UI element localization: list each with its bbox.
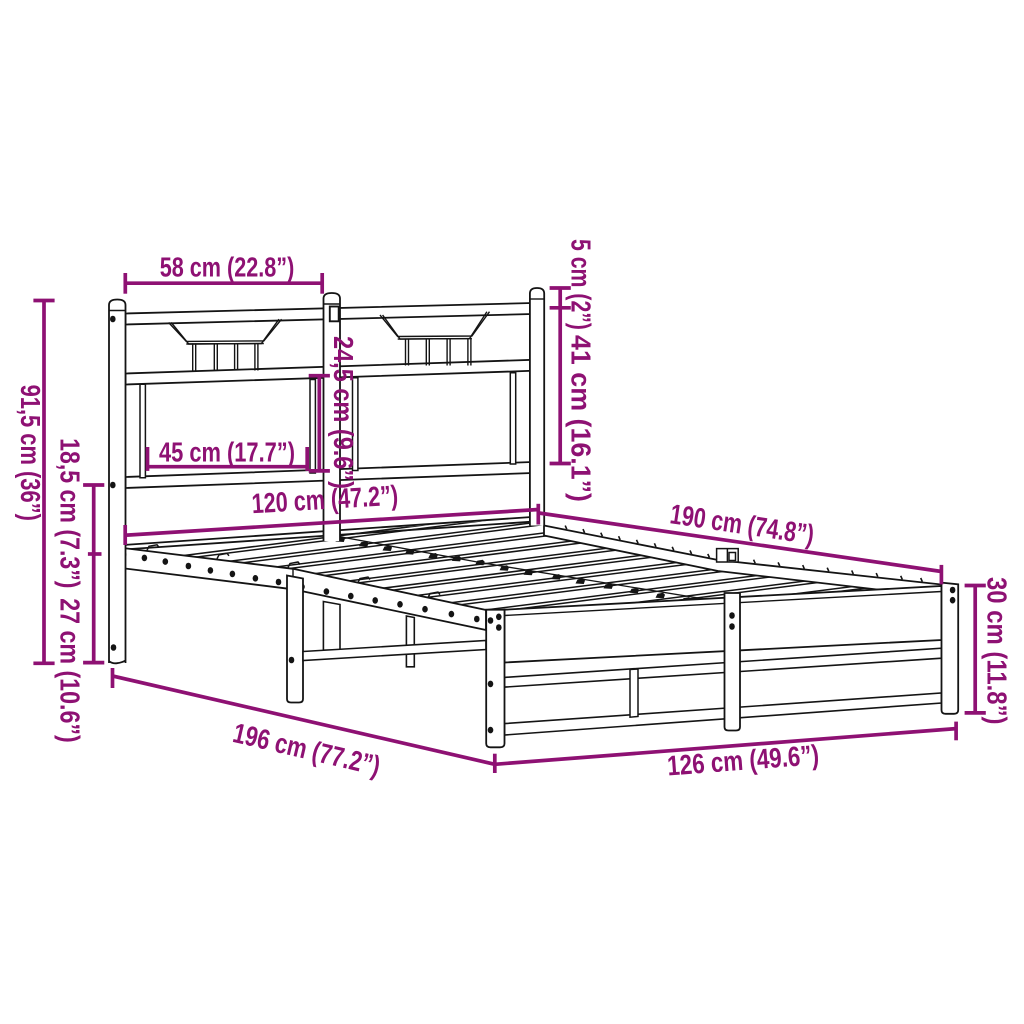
svg-text:45 cm (17.7”): 45 cm (17.7”): [159, 437, 295, 468]
svg-text:91,5 cm (36”): 91,5 cm (36”): [15, 385, 46, 521]
svg-text:27 cm (10.6”): 27 cm (10.6”): [55, 598, 86, 743]
svg-text:5 cm (2”): 5 cm (2”): [566, 239, 597, 330]
svg-text:24,5 cm (9.6”): 24,5 cm (9.6”): [328, 336, 359, 489]
svg-text:18,5 cm (7.3”): 18,5 cm (7.3”): [55, 438, 86, 588]
svg-text:41 cm (16.1”): 41 cm (16.1”): [566, 335, 597, 502]
svg-text:30 cm (11.8”): 30 cm (11.8”): [982, 577, 1013, 725]
svg-text:58 cm (22.8”): 58 cm (22.8”): [160, 252, 295, 283]
